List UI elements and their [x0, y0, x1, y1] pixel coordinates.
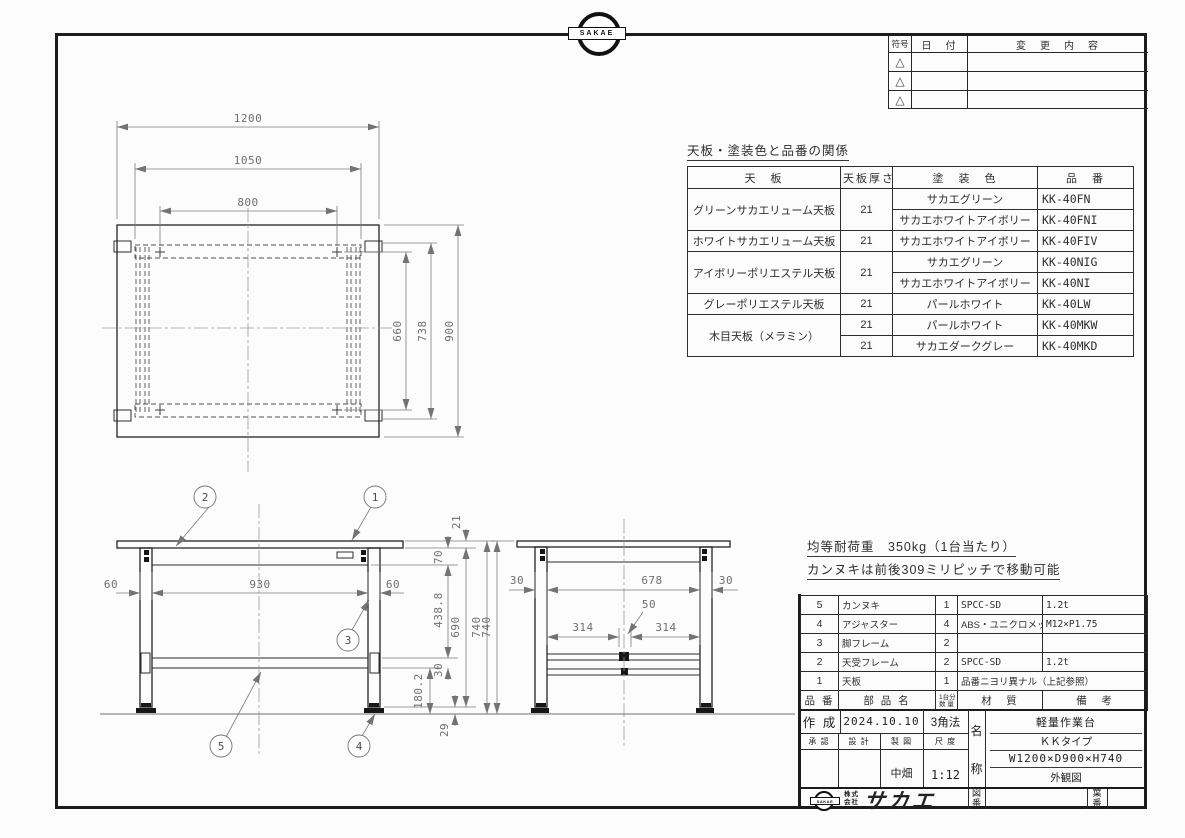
paint-cell-code: KK-40MKW [1038, 315, 1134, 336]
paint-cell-color: サカエダークグレー [893, 336, 1038, 357]
sakae-logo-small: SAKAE 株式 会社 サカエ [800, 789, 968, 809]
table-row: 3 脚フレーム 2 [801, 634, 1148, 653]
sheet-no-value [1107, 787, 1147, 809]
part-name: 天板 [839, 672, 936, 691]
table-row: アイボリーポリエステル天板 21 サカエグリーン KK-40NIG [688, 252, 1134, 273]
balloon-3: 3 [337, 600, 369, 651]
dim-label-438-8: 438.8 [432, 592, 445, 628]
paint-cell-color: サカエグリーン [893, 252, 1038, 273]
paint-cell-thickness: 21 [841, 252, 893, 294]
revision-row-3-symbol: △ [889, 91, 912, 109]
scale-value: 1:12 [923, 749, 968, 787]
balloon-2: 2 [176, 486, 216, 546]
part-no: 5 [801, 596, 839, 615]
table-row: 1 天板 1 品番ニヨリ異ナル（上記参照） [801, 672, 1148, 691]
dim-label-30: 30 [432, 663, 445, 677]
part-material: SPCC-SD [958, 596, 1043, 615]
top-view: 1200 1050 800 900 738 660 [102, 112, 464, 472]
parts-table: 5 カンヌキ 1 SPCC-SD 1.2t 4 アジャスター 4 ABS・ユニク… [800, 595, 1148, 711]
revision-row-3-change [968, 91, 1148, 109]
paint-table-title: 天板・塗装色と品番の関係 [687, 140, 849, 160]
parts-table-header: 品 番 部 品 名 1台分 数 量 材 質 備 考 [801, 691, 1148, 711]
revision-row-2-date [912, 72, 968, 91]
paint-cell-code: KK-40NI [1038, 273, 1134, 294]
paint-cell-code: KK-40FNI [1038, 210, 1134, 231]
paint-table: 天 板 天板厚さ 塗 装 色 品 番 グリーンサカエリューム天板 21 サカエグ… [687, 166, 1134, 357]
drawing-sheet: 1200 1050 800 900 738 660 [0, 0, 1185, 838]
part-remarks: 1.2t [1043, 596, 1148, 615]
paint-cell-top: 木目天板（メラミン） [688, 315, 841, 357]
approved-label: 承 認 [800, 733, 838, 749]
projection-method: 3角法 [923, 710, 968, 733]
revision-row-1-change [968, 53, 1148, 72]
adjuster-position-markers [155, 247, 342, 415]
dim-label-900: 900 [443, 320, 456, 341]
part-qty: 2 [936, 653, 958, 672]
revision-table: 符号 日 付 変 更 内 容 △ △ △ [888, 36, 1148, 109]
paint-cell-color: サカエホワイトアイボリー [893, 210, 1038, 231]
drafter-name: 中畑 [880, 749, 923, 787]
dim-label-30-right: 30 [719, 574, 733, 587]
revision-row-3-date [912, 91, 968, 109]
paint-cell-code: KK-40MKD [1038, 336, 1134, 357]
balloon-1: 1 [352, 486, 386, 540]
table-row: グレーポリエステル天板 21 パールホワイト KK-40LW [688, 294, 1134, 315]
scale-label: 尺 度 [923, 733, 968, 749]
part-name: 脚フレーム [839, 634, 936, 653]
parts-header-qty-line1: 1台分 [939, 694, 954, 701]
paint-cell-top: アイボリーポリエステル天板 [688, 252, 841, 294]
dim-label-21: 21 [450, 515, 463, 529]
front-view: 60 930 60 21 70 438.8 30 [104, 486, 495, 757]
dim-label-70: 70 [432, 550, 445, 564]
design-label: 設 計 [838, 733, 880, 749]
revision-triangle-icon: △ [895, 75, 904, 87]
name-label-char2: 称 [968, 750, 985, 787]
created-label: 作 成 [800, 710, 840, 733]
sakae-logo-text: SAKAE [810, 797, 840, 805]
table-row: 2 天受フレーム 2 SPCC-SD 1.2t [801, 653, 1148, 672]
paint-cell-thickness: 21 [841, 189, 893, 231]
paint-cell-color: パールホワイト [893, 315, 1038, 336]
svg-text:3: 3 [345, 634, 352, 647]
sakae-logo-text: SAKAE [568, 27, 626, 40]
revision-col-change: 変 更 内 容 [968, 36, 1148, 53]
part-no: 1 [801, 672, 839, 691]
product-type: ＫＫタイプ [985, 733, 1147, 750]
revision-col-date: 日 付 [912, 36, 968, 53]
parts-header-name: 部 品 名 [839, 691, 936, 711]
name-label-char1: 名 [968, 710, 985, 750]
product-size: W1200×D900×H740 [985, 750, 1147, 767]
product-name: 軽量作業台 [985, 710, 1147, 733]
dim-label-314-right: 314 [655, 621, 676, 634]
dim-label-180-2: 180.2 [412, 673, 425, 709]
dim-label-29: 29 [438, 723, 451, 737]
svg-text:2: 2 [202, 491, 209, 504]
paint-cell-color: サカエホワイトアイボリー [893, 273, 1038, 294]
note-load-capacity: 均等耐荷重 350kg（1台当たり） [807, 536, 1016, 555]
parts-header-remarks: 備 考 [1043, 691, 1148, 711]
parts-header-material: 材 質 [958, 691, 1043, 711]
part-no: 3 [801, 634, 839, 653]
paint-cell-thickness: 21 [841, 294, 893, 315]
drawing-type: 外観図 [985, 767, 1147, 787]
paint-table-header: 天 板 天板厚さ 塗 装 色 品 番 [688, 167, 1134, 189]
title-block: 作 成 2024.10.10 3角法 承 認 設 計 製 図 尺 度 中畑 1:… [800, 710, 1147, 809]
part-material: SPCC-SD [958, 653, 1043, 672]
paint-cell-top: グレーポリエステル天板 [688, 294, 841, 315]
part-qty: 2 [936, 634, 958, 653]
part-no: 4 [801, 615, 839, 634]
company-name: サカエ [862, 785, 937, 815]
revision-row-1-symbol: △ [889, 53, 912, 72]
balloon-4: 4 [348, 714, 375, 757]
sheet-no-label: 葉 番 [1087, 787, 1107, 809]
draft-label: 製 図 [880, 733, 923, 749]
part-qty: 1 [936, 596, 958, 615]
paint-cell-code: KK-40NIG [1038, 252, 1134, 273]
revision-row-1-date [912, 53, 968, 72]
dim-label-930: 930 [249, 578, 270, 591]
paint-cell-color: パールホワイト [893, 294, 1038, 315]
paint-cell-color: サカエホワイトアイボリー [893, 231, 1038, 252]
dim-label-690: 690 [449, 616, 462, 637]
paint-header-thickness: 天板厚さ [841, 167, 893, 189]
dim-label-314-left: 314 [572, 621, 593, 634]
part-name: カンヌキ [839, 596, 936, 615]
company-prefix: 株式 会社 [844, 791, 859, 807]
part-remarks [1043, 634, 1148, 653]
table-row: グリーンサカエリューム天板 21 サカエグリーン KK-40FN [688, 189, 1134, 210]
part-remarks: M12×P1.75 [1043, 615, 1148, 634]
dim-label-50: 50 [642, 598, 656, 611]
dim-label-60-left: 60 [104, 578, 118, 591]
part-no: 2 [801, 653, 839, 672]
paint-cell-code: KK-40LW [1038, 294, 1134, 315]
part-material: 品番ニヨリ異ナル（上記参照） [958, 672, 1148, 691]
svg-text:4: 4 [356, 740, 363, 753]
paint-cell-thickness: 21 [841, 336, 893, 357]
paint-cell-thickness: 21 [841, 315, 893, 336]
created-date: 2024.10.10 [840, 710, 923, 733]
paint-cell-top: ホワイトサカエリューム天板 [688, 231, 841, 252]
parts-header-no: 品 番 [801, 691, 839, 711]
revision-triangle-icon: △ [895, 94, 904, 106]
parts-header-qty: 1台分 数 量 [936, 691, 958, 711]
dim-label-660: 660 [391, 320, 404, 341]
dim-label-740-side: 740 [480, 616, 493, 637]
paint-cell-thickness: 21 [841, 231, 893, 252]
paint-cell-color: サカエグリーン [893, 189, 1038, 210]
paint-cell-code: KK-40FIV [1038, 231, 1134, 252]
svg-text:5: 5 [218, 740, 225, 753]
note-kannuki-pitch: カンヌキは前後309ミリピッチで移動可能 [807, 559, 1060, 578]
part-qty: 1 [936, 672, 958, 691]
revision-triangle-icon: △ [895, 56, 904, 68]
dim-label-30-left: 30 [510, 574, 524, 587]
paint-cell-top: グリーンサカエリューム天板 [688, 189, 841, 231]
paint-cell-code: KK-40FN [1038, 189, 1134, 210]
part-name: アジャスター [839, 615, 936, 634]
dim-label-1200: 1200 [234, 112, 263, 125]
part-qty: 4 [936, 615, 958, 634]
paint-header-color: 塗 装 色 [893, 167, 1038, 189]
dim-label-678: 678 [641, 574, 662, 587]
part-remarks: 1.2t [1043, 653, 1148, 672]
dim-label-1050: 1050 [234, 154, 263, 167]
dim-label-60-right: 60 [386, 578, 400, 591]
svg-text:1: 1 [372, 491, 379, 504]
table-row: 5 カンヌキ 1 SPCC-SD 1.2t [801, 596, 1148, 615]
drawing-no-label: 図 番 [968, 787, 985, 809]
part-material: ABS・ユニクロメッキ [958, 615, 1043, 634]
dim-label-738: 738 [416, 320, 429, 341]
table-row: 木目天板（メラミン） 21 パールホワイト KK-40MKW [688, 315, 1134, 336]
sakae-logo-top: SAKAE [574, 11, 622, 57]
drawing-no-value [985, 787, 1087, 809]
paint-header-code: 品 番 [1038, 167, 1134, 189]
table-row: ホワイトサカエリューム天板 21 サカエホワイトアイボリー KK-40FIV [688, 231, 1134, 252]
revision-row-2-symbol: △ [889, 72, 912, 91]
part-material [958, 634, 1043, 653]
revision-row-2-change [968, 72, 1148, 91]
part-name: 天受フレーム [839, 653, 936, 672]
paint-header-top: 天 板 [688, 167, 841, 189]
revision-col-symbol: 符号 [889, 36, 912, 53]
parts-header-qty-line2: 数 量 [939, 701, 954, 708]
dim-label-800: 800 [237, 196, 258, 209]
table-row: 4 アジャスター 4 ABS・ユニクロメッキ M12×P1.75 [801, 615, 1148, 634]
